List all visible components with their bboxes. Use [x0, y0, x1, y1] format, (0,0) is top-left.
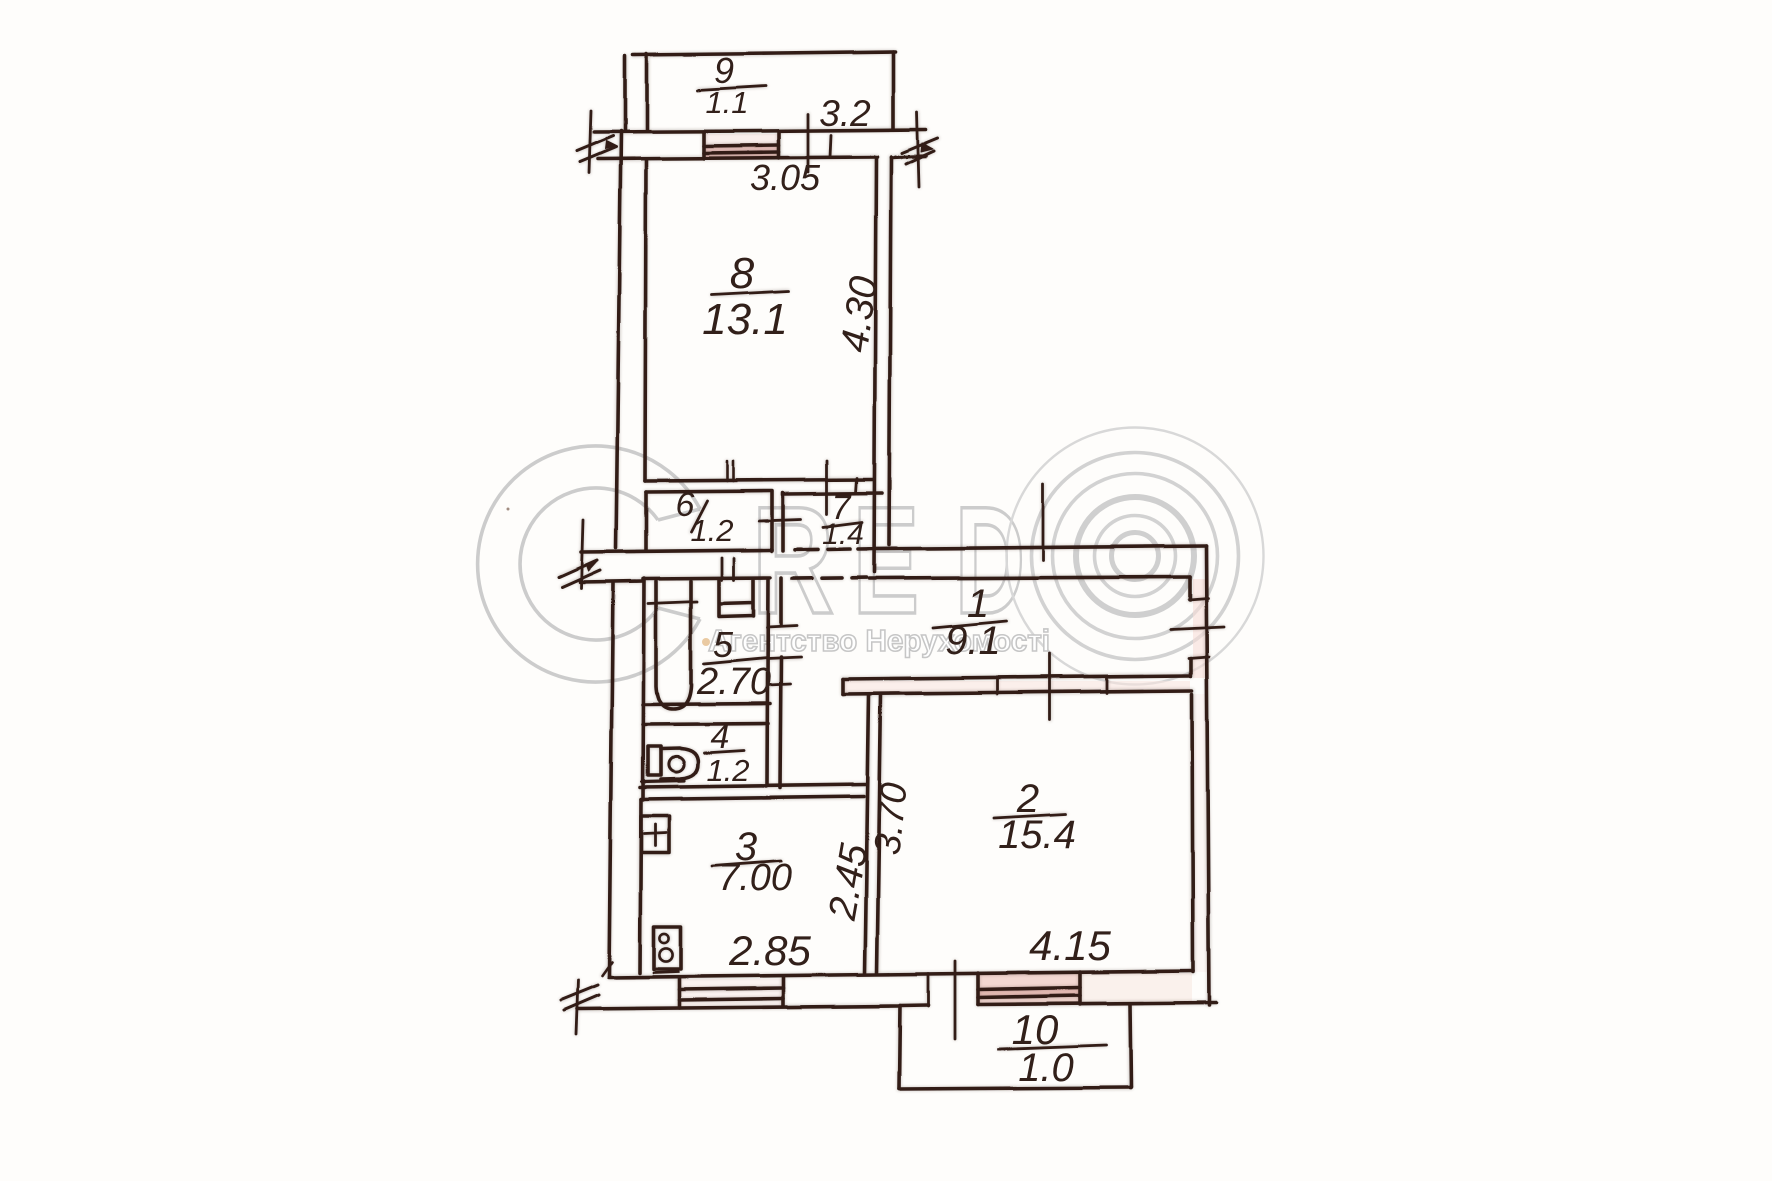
svg-text:15.4: 15.4	[998, 813, 1076, 857]
svg-text:4: 4	[711, 718, 730, 756]
svg-text:8: 8	[730, 249, 755, 298]
svg-text:1.2: 1.2	[706, 753, 749, 788]
svg-text:R: R	[752, 475, 834, 646]
svg-text:7.00: 7.00	[718, 857, 792, 899]
svg-text:1.2: 1.2	[690, 513, 733, 548]
svg-text:5: 5	[713, 624, 734, 665]
svg-text:1.4: 1.4	[822, 518, 864, 551]
svg-text:2.70: 2.70	[696, 661, 771, 703]
svg-text:2.85: 2.85	[728, 927, 811, 974]
svg-text:4.15: 4.15	[1029, 922, 1111, 969]
svg-text:3.05: 3.05	[750, 157, 821, 198]
svg-text:3.70: 3.70	[866, 780, 914, 856]
svg-text:3.2: 3.2	[819, 93, 871, 134]
svg-text:1.0: 1.0	[1018, 1046, 1074, 1090]
svg-text:1.1: 1.1	[705, 85, 748, 120]
svg-text:13.1: 13.1	[702, 295, 788, 344]
svg-text:9.1: 9.1	[945, 619, 1001, 663]
svg-text:E: E	[853, 475, 919, 646]
